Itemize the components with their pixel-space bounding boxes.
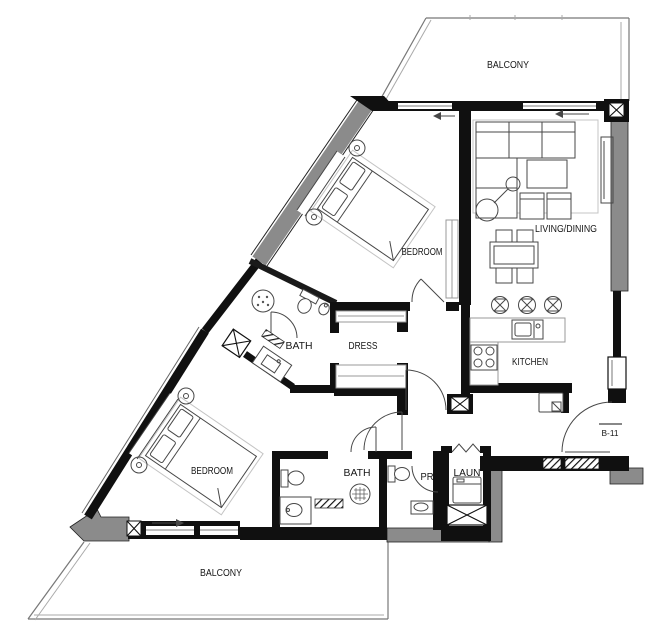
towel-rail-icon	[262, 330, 285, 349]
dining-chair-icon	[496, 267, 512, 283]
dining-chair-icon	[517, 267, 533, 283]
column-x-icon	[451, 397, 469, 411]
room-dress: DRESS	[349, 341, 378, 352]
entry: B-11	[562, 402, 622, 452]
door-arc	[271, 312, 297, 338]
bedroom-2-label: BEDROOM	[191, 466, 233, 477]
window	[200, 526, 238, 535]
bath-1-label: BATH	[286, 341, 313, 352]
wardrobe-icon	[446, 220, 458, 298]
column-x-icon	[609, 103, 624, 117]
bar-stool-icon	[492, 297, 509, 314]
washer-icon	[453, 477, 481, 503]
toilet-icon	[388, 466, 410, 482]
unit-door-tag: B-11	[602, 428, 619, 438]
living-bedroom-wall	[459, 103, 471, 305]
balcony-top: BALCONY	[380, 15, 629, 101]
coffee-table-icon	[527, 160, 567, 188]
toilet-icon	[281, 470, 304, 487]
fridge-icon	[539, 393, 563, 412]
bifold-door-icon	[452, 444, 480, 452]
arrow-left-icon	[555, 110, 589, 118]
shaft-x-icon	[447, 505, 487, 525]
room-living-dining: LIVING/DINING	[473, 120, 613, 283]
door-arc	[562, 402, 612, 452]
counter	[470, 318, 565, 342]
shower-icon	[252, 290, 274, 312]
dining-set-icon	[490, 230, 538, 283]
armchair-icon	[520, 193, 544, 219]
armchair-icon	[547, 193, 571, 219]
door-arc	[412, 279, 444, 302]
door-arc	[364, 412, 402, 450]
shower-icon	[350, 484, 370, 504]
kitchen-label: KITCHEN	[512, 357, 548, 368]
window	[146, 526, 194, 535]
balcony-edge	[28, 542, 84, 619]
room-kitchen: KITCHEN	[470, 297, 565, 413]
vanity-icon	[280, 497, 311, 524]
dress-label: DRESS	[349, 341, 378, 352]
room-bath-1: BATH	[252, 289, 331, 382]
balcony-bottom: BALCONY	[28, 542, 388, 620]
balcony-top-label: BALCONY	[487, 60, 529, 71]
nightstand-icon	[131, 457, 147, 473]
dress-closet-icon	[336, 311, 406, 322]
nightstand-icon	[178, 388, 194, 404]
diagonal-windows	[129, 151, 345, 459]
dress-closet-icon	[336, 365, 406, 388]
threshold	[565, 458, 599, 469]
bar-stool-icon	[519, 297, 536, 314]
room-bath-2: BATH	[280, 427, 376, 524]
arrow-left-icon	[433, 112, 455, 120]
column-x-icon	[127, 521, 141, 536]
room-bedroom-2: BEDROOM	[131, 388, 263, 515]
right-wall	[611, 121, 628, 291]
bath-2-label: BATH	[344, 468, 371, 479]
balcony-bottom-label: BALCONY	[200, 568, 242, 579]
bench-icon	[315, 499, 343, 508]
bedroom-1-label: BEDROOM	[402, 247, 443, 258]
living-dining-label: LIVING/DINING	[535, 224, 597, 235]
door-arc	[351, 427, 376, 452]
room-powder: PR	[388, 466, 438, 514]
sink-icon	[317, 301, 331, 316]
balcony-edge	[380, 18, 426, 100]
sink-icon	[411, 501, 433, 514]
threshold	[543, 458, 561, 469]
bar-stool-icon	[545, 297, 562, 314]
floor-plan: BALCONY BALCONY	[0, 0, 651, 633]
window	[608, 357, 626, 389]
floor-plan-drawing: BALCONY BALCONY	[0, 0, 651, 633]
pr-label: PR	[421, 472, 434, 483]
laundry-label: LAUN	[454, 468, 481, 479]
door-arc	[406, 370, 446, 410]
wall-junction	[70, 509, 129, 541]
